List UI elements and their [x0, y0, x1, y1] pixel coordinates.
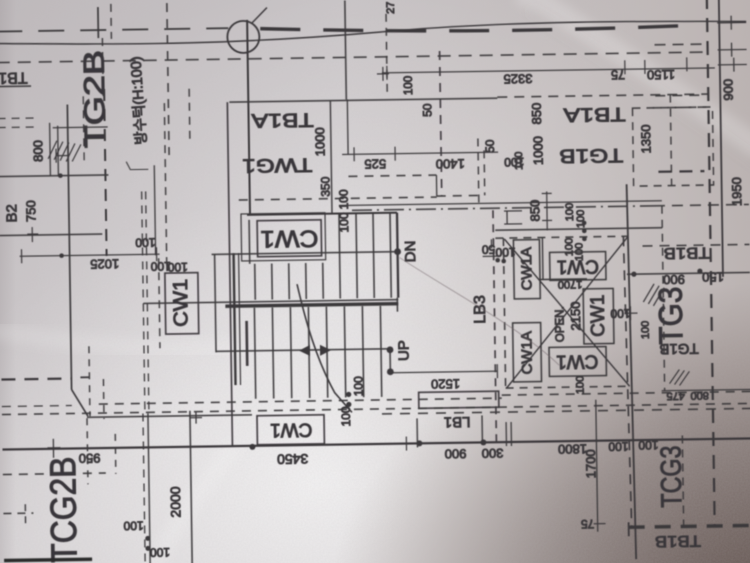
svg-text:100: 100: [351, 376, 365, 397]
svg-text:CW1: CW1: [588, 294, 610, 337]
svg-text:100: 100: [575, 210, 587, 229]
svg-text:100: 100: [167, 260, 188, 274]
svg-text:2150: 2150: [568, 301, 583, 330]
svg-text:CW1: CW1: [170, 279, 193, 327]
svg-text:3325: 3325: [503, 71, 532, 86]
svg-text:900: 900: [721, 79, 736, 101]
svg-text:1025: 1025: [90, 256, 119, 271]
svg-text:850: 850: [529, 103, 544, 125]
svg-text:CW1A: CW1A: [518, 247, 536, 291]
svg-text:900: 900: [663, 272, 685, 287]
svg-text:3450: 3450: [277, 451, 309, 467]
svg-text:TG1B: TG1B: [559, 144, 623, 166]
svg-text:TB1B: TB1B: [655, 532, 701, 550]
svg-text:1350: 1350: [638, 124, 653, 153]
svg-text:100: 100: [135, 235, 156, 249]
svg-text:27: 27: [385, 2, 397, 14]
svg-text:100: 100: [495, 245, 516, 259]
svg-text:800: 800: [690, 389, 709, 401]
svg-text:UP: UP: [395, 340, 412, 361]
svg-text:1000: 1000: [312, 127, 327, 156]
svg-text:350: 350: [318, 176, 332, 197]
svg-text:100: 100: [574, 376, 586, 395]
svg-text:525: 525: [364, 156, 386, 171]
svg-text:TG3: TG3: [652, 286, 690, 345]
svg-text:1520: 1520: [431, 376, 460, 391]
svg-text:2000: 2000: [167, 486, 183, 518]
svg-text:CW1A: CW1A: [518, 331, 536, 375]
svg-text:TCG2B: TCG2B: [42, 456, 85, 563]
svg-text:1950: 1950: [729, 177, 744, 206]
svg-text:TB1B: TB1B: [663, 244, 709, 262]
svg-text:100: 100: [573, 243, 585, 262]
svg-text:800: 800: [30, 140, 45, 162]
svg-text:300: 300: [482, 446, 504, 461]
svg-text:1400: 1400: [436, 156, 465, 171]
svg-text:TWG1: TWG1: [242, 153, 312, 175]
svg-text:75: 75: [611, 67, 625, 81]
svg-text:1150: 1150: [647, 67, 675, 82]
svg-text:50: 50: [483, 139, 497, 153]
svg-text:1000: 1000: [530, 136, 545, 165]
svg-text:OPEN.: OPEN.: [554, 306, 567, 342]
svg-text:TG1B: TG1B: [659, 340, 698, 358]
svg-text:B2: B2: [3, 204, 20, 223]
svg-text:DN: DN: [402, 241, 419, 263]
svg-text:LB3: LB3: [472, 295, 489, 324]
svg-text:TB1A: TB1A: [251, 108, 314, 130]
svg-text:100: 100: [150, 545, 171, 559]
svg-text:TB1: TB1: [0, 69, 28, 86]
svg-text:LB1: LB1: [444, 413, 471, 430]
svg-text:100: 100: [337, 189, 351, 210]
svg-text:900: 900: [445, 446, 467, 461]
svg-text:TB1A: TB1A: [563, 103, 626, 125]
svg-text:75: 75: [581, 517, 595, 531]
svg-text:CW1: CW1: [260, 224, 318, 252]
svg-text:750: 750: [23, 200, 38, 222]
svg-text:100: 100: [513, 152, 525, 171]
svg-text:475: 475: [666, 389, 685, 401]
svg-text:CW1: CW1: [270, 418, 313, 440]
svg-text:CW1: CW1: [556, 350, 599, 372]
svg-text:100: 100: [640, 321, 652, 340]
svg-text:150: 150: [702, 269, 724, 284]
svg-text:100: 100: [123, 518, 144, 532]
svg-text:50: 50: [420, 103, 434, 117]
svg-text:100: 100: [608, 439, 629, 453]
svg-text:100: 100: [403, 76, 415, 95]
